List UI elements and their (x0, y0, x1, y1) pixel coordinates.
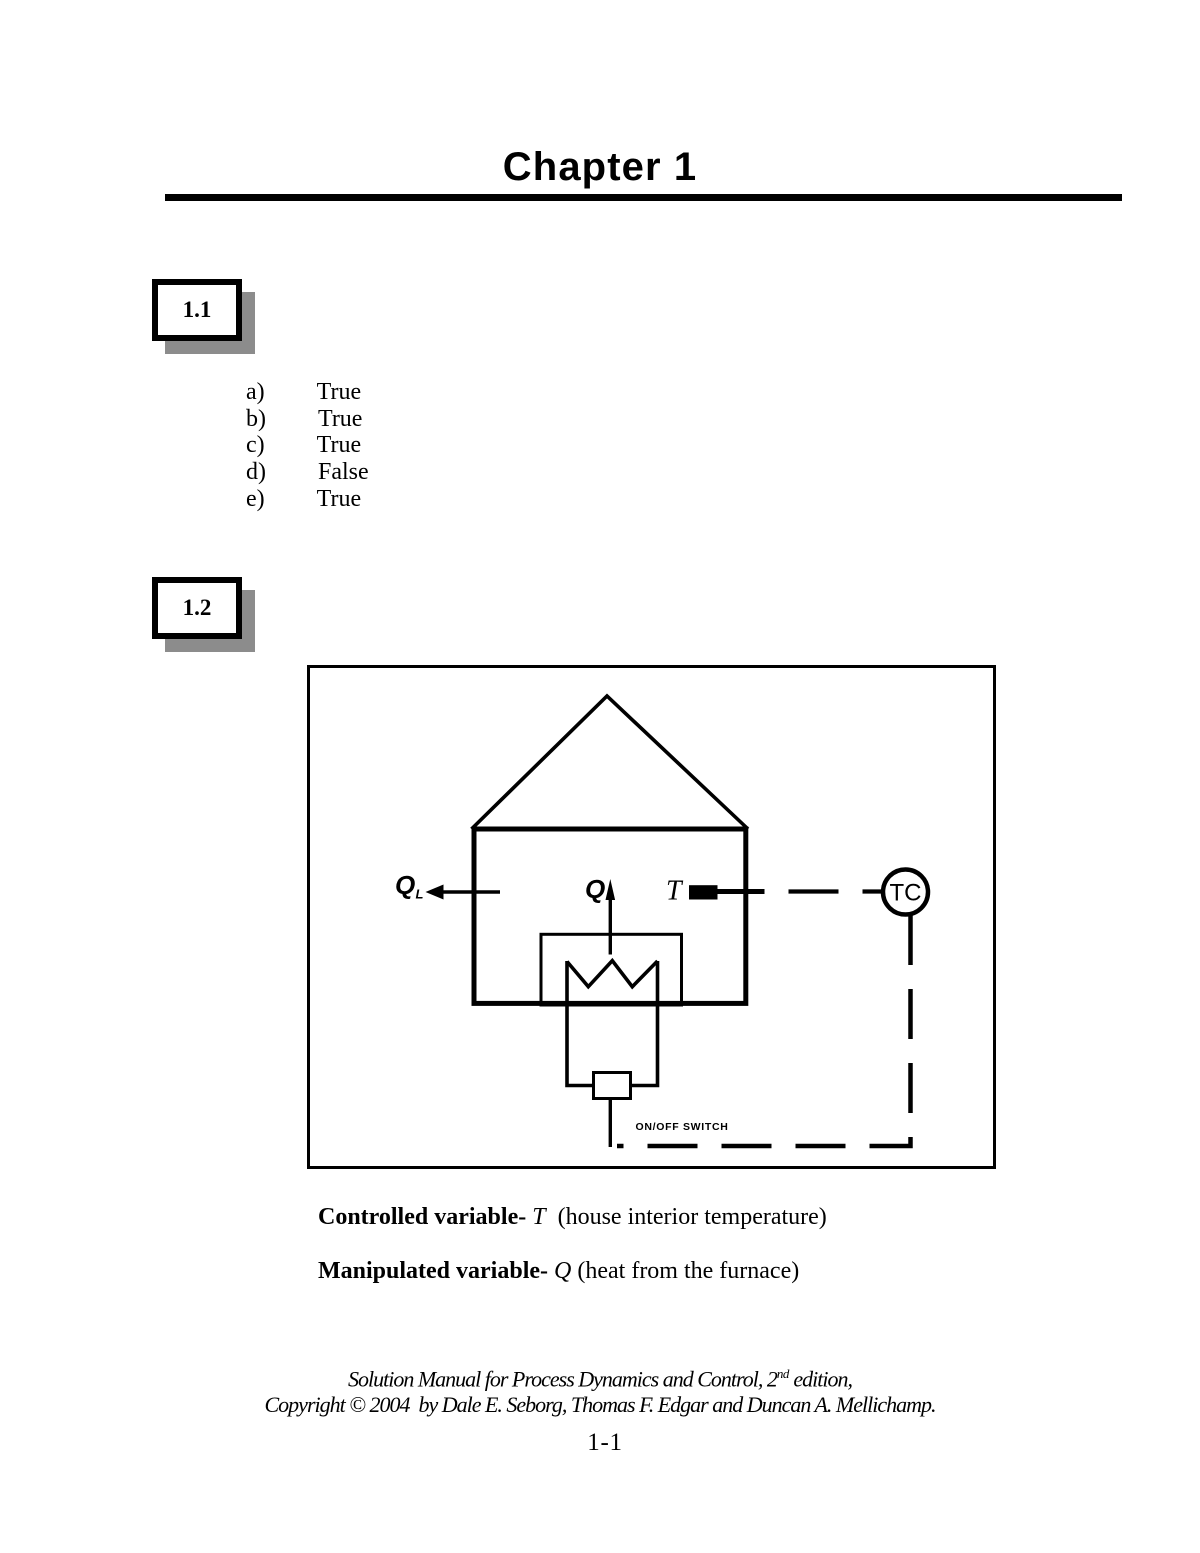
svg-text:ON/OFF SWITCH: ON/OFF SWITCH (636, 1121, 729, 1133)
svg-text:L: L (416, 887, 424, 902)
svg-text:Q: Q (585, 874, 605, 904)
svg-text:T: T (666, 876, 684, 907)
svg-text:TC: TC (890, 880, 922, 907)
svg-text:Q: Q (395, 870, 415, 900)
